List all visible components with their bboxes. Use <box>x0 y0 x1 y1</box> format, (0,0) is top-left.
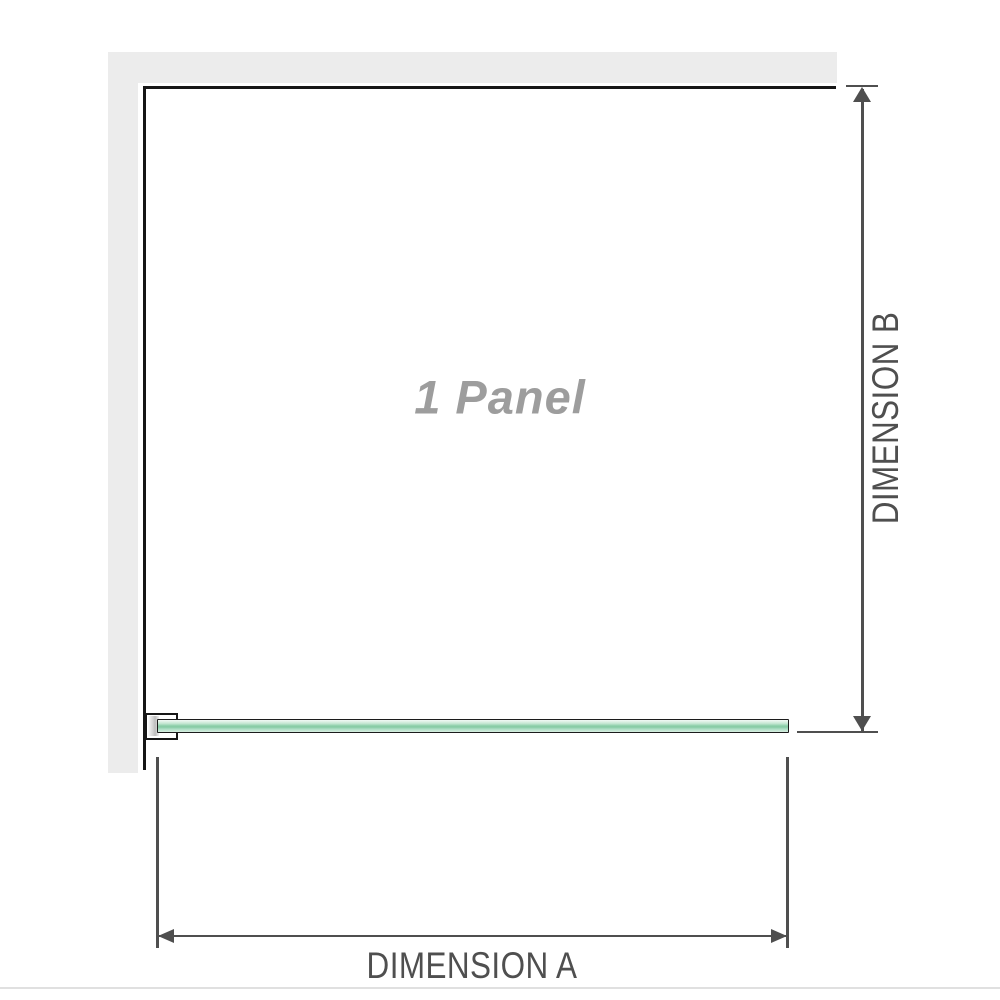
dimension-b-arrowhead-bottom-icon <box>853 716 871 731</box>
panel-outline-top <box>143 86 836 89</box>
dimension-a-extension-right <box>786 757 789 948</box>
glass-panel <box>157 719 789 733</box>
dimension-b-arrowhead-top-icon <box>853 87 871 102</box>
panel-label: 1 Panel <box>414 370 586 425</box>
dimension-a-arrowhead-right-icon <box>771 929 787 943</box>
dimension-a-extension-left <box>156 757 159 948</box>
page-divider <box>0 987 1000 989</box>
shower-panel-diagram: 1 Panel DIMENSION B DIMENSION A <box>0 0 1000 1000</box>
panel-outline-left <box>143 86 146 770</box>
dimension-b-line <box>861 89 864 731</box>
dimension-b-label: DIMENSION B <box>865 312 907 525</box>
dimension-a-arrowhead-left-icon <box>158 929 174 943</box>
wall-top <box>108 52 837 83</box>
wall-left <box>108 52 138 773</box>
dimension-a-label: DIMENSION A <box>367 945 578 987</box>
dimension-a-line <box>158 935 787 938</box>
